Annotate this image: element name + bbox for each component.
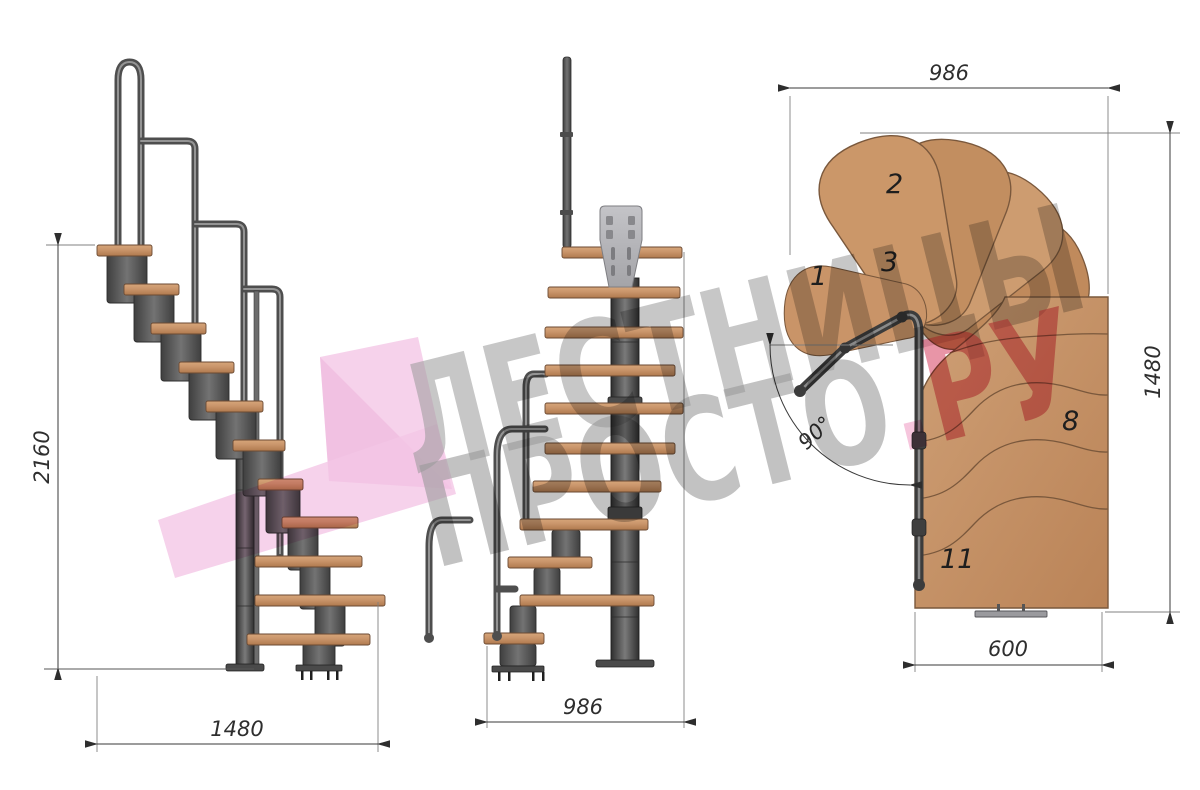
step-number: 2 [886, 169, 903, 200]
tread [255, 556, 362, 567]
column-base-flange [226, 664, 264, 671]
handrail-collar [912, 519, 926, 536]
dim-label-step-width: 600 [988, 637, 1028, 661]
handrail-end-cap [913, 579, 925, 591]
handrail-end-cap [492, 631, 502, 641]
dim-label-plan-top: 986 [929, 61, 969, 85]
staircase-technical-drawing: 2160 1480 [0, 0, 1200, 790]
tread [520, 595, 654, 606]
handrail-end-cap [424, 633, 434, 643]
tread [247, 634, 370, 645]
dim-label-width: 986 [563, 695, 603, 719]
drawing-canvas: 2160 1480 [0, 0, 1200, 790]
tread [97, 245, 152, 256]
tread [179, 362, 234, 373]
tread [151, 323, 206, 334]
dim-label-plan-length: 1480 [1141, 345, 1165, 398]
dim-label-total-run: 1480 [210, 717, 263, 741]
tread [255, 595, 385, 606]
base-plate [492, 666, 544, 672]
base-plate [296, 665, 342, 671]
dim-label-total-height: 2160 [30, 430, 54, 483]
tread [124, 284, 179, 295]
tread [206, 401, 263, 412]
column-base-flange [596, 660, 654, 667]
step-number: 11 [940, 544, 974, 575]
tread [233, 440, 285, 451]
module [500, 644, 536, 666]
